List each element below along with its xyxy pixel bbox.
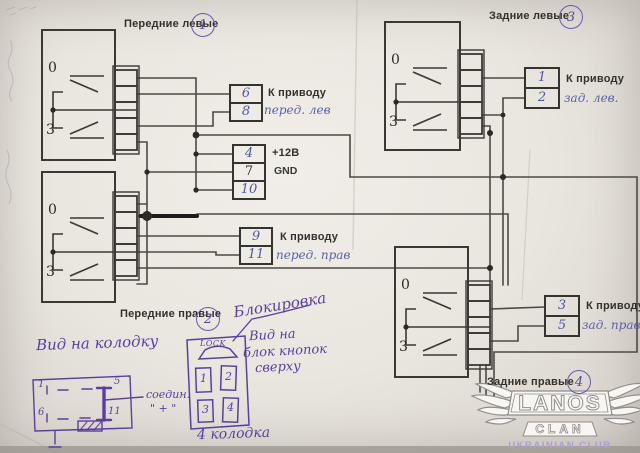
switch-front-right: [42, 172, 139, 302]
logo-sub-text: CLAN: [535, 422, 584, 436]
pin-7: 7: [233, 164, 265, 179]
note-join-plus-line2: " + ": [150, 402, 176, 415]
button-1: 1: [196, 372, 211, 385]
label-drive-rear-left: К приводу: [566, 73, 624, 85]
note-rear-left: зад. лев.: [564, 91, 618, 105]
switch3-pos-3: 3: [389, 114, 398, 130]
button-3: 3: [198, 403, 213, 416]
logo-tagline-text: UKRAINIAN CLUB: [508, 440, 611, 451]
switch2-pos-0: 0: [48, 202, 57, 218]
switch-rear-left: [385, 22, 484, 150]
switch4-pos-0: 0: [401, 277, 410, 293]
button-block-caption: 4 колодка: [197, 425, 271, 444]
button-4: 4: [223, 401, 238, 414]
logo-name-text: LANOS: [518, 392, 602, 415]
view-pin-11: 11: [108, 406, 121, 417]
lanos-clan-logo: LANOS CLAN UKRAINIAN CLUB: [472, 383, 640, 451]
lock-button-label: LOCK: [200, 339, 226, 348]
switch1-pos-3: 3: [46, 122, 55, 138]
label-drive-rear-right: К приводу: [586, 300, 640, 312]
switch-symbols: [42, 22, 492, 377]
switch4-pos-3: 3: [399, 339, 408, 355]
label-gnd: GND: [274, 165, 297, 177]
circle-number-4: 4: [567, 370, 591, 394]
pin-6: 6: [230, 86, 262, 101]
view-pin-1: 1: [38, 379, 44, 390]
label-drive-front-left: К приводу: [268, 87, 326, 99]
note-join-plus-line1: соедин.: [146, 388, 190, 401]
label-plus-12v: +12В: [272, 147, 299, 159]
label-rear-right-switch: Задние правые: [487, 376, 574, 388]
scanned-wiring-diagram: LANOS CLAN UKRAINIAN CLUB Передние левые…: [0, 0, 640, 453]
label-rear-left-switch: Задние левые: [489, 10, 569, 22]
connector-view-sketch: [33, 376, 143, 447]
switch1-pos-0: 0: [48, 60, 57, 76]
note-view-line3: сверху: [255, 359, 301, 376]
pencil-scribbles: [6, 7, 36, 204]
circle-number-3: 3: [559, 5, 583, 29]
circle-number-2: 2: [196, 307, 220, 331]
pin-5: 5: [545, 318, 579, 333]
pin-9: 9: [240, 229, 272, 244]
pin-8: 8: [230, 104, 262, 119]
circle-number-1: 1: [191, 13, 215, 37]
label-drive-front-right: К приводу: [280, 231, 338, 243]
note-front-left: перед. лев: [264, 103, 331, 117]
view-pin-5: 5: [114, 376, 120, 387]
button-2: 2: [221, 370, 236, 383]
pin-11: 11: [240, 247, 272, 262]
pin-10: 10: [233, 182, 265, 197]
pin-2: 2: [525, 90, 559, 105]
note-front-right: перед. прав: [276, 248, 350, 262]
switch-front-left: [42, 30, 139, 160]
switch3-pos-0: 0: [391, 52, 400, 68]
pin-3: 3: [545, 298, 579, 313]
view-pin-6: 6: [38, 407, 44, 418]
note-view-line1: Вид на: [249, 327, 296, 344]
wires: [137, 78, 637, 398]
switch2-pos-3: 3: [46, 264, 55, 280]
pin-4: 4: [233, 146, 265, 161]
pin-1: 1: [525, 70, 559, 85]
note-rear-right: зад. прав: [582, 318, 640, 332]
switch-rear-right: [395, 247, 492, 377]
